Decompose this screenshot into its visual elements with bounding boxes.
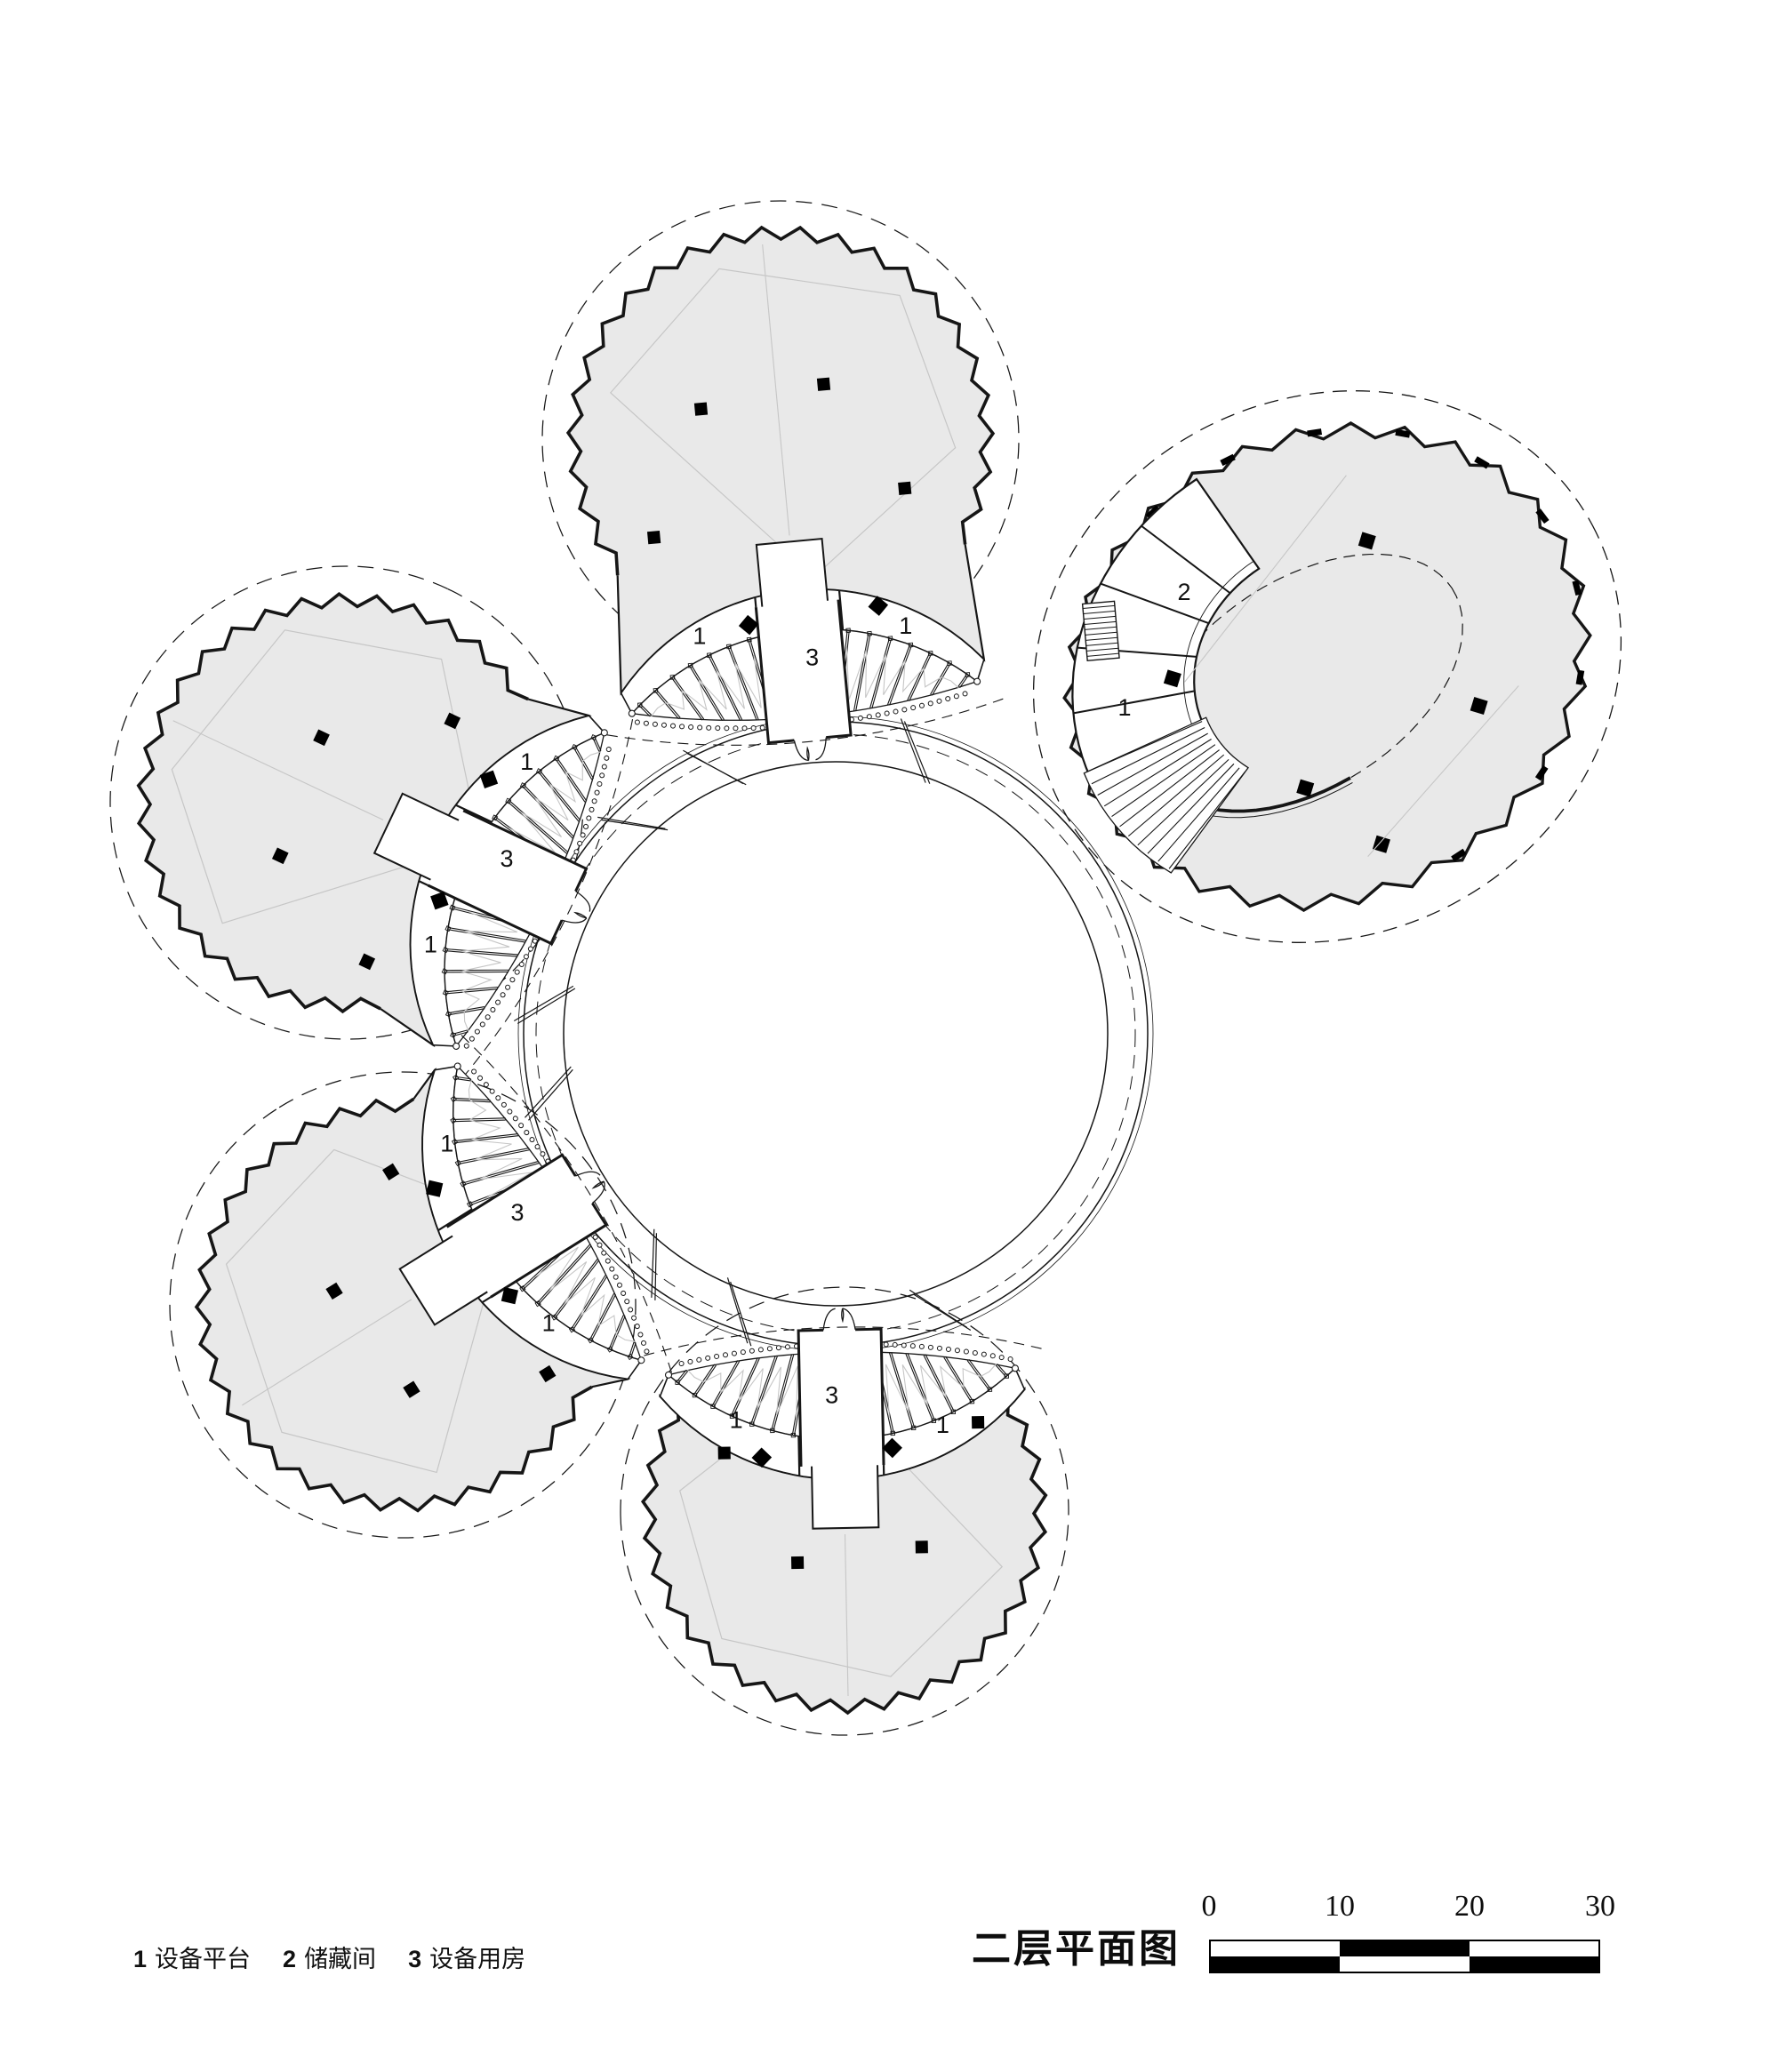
dot	[529, 1137, 535, 1143]
legend-label: 储藏间	[304, 1946, 376, 1972]
dot	[634, 1324, 640, 1330]
dot	[586, 815, 592, 821]
dot	[661, 723, 666, 727]
legend-item-2: 2储藏间	[283, 1940, 376, 1974]
dot	[964, 1349, 968, 1354]
room-number-label: 1	[520, 748, 533, 775]
dot	[688, 724, 693, 729]
ring-outer-line	[524, 722, 1148, 1346]
room-number-label: 3	[825, 1381, 838, 1408]
equipment-room-fill	[756, 600, 851, 743]
pavilion-northeast	[936, 289, 1718, 1045]
service-stair	[1083, 601, 1119, 660]
dot	[617, 1282, 623, 1288]
dot	[631, 1315, 637, 1321]
legend-num: 2	[283, 1946, 296, 1972]
dot	[919, 703, 924, 708]
dot	[505, 984, 511, 990]
dot	[670, 724, 675, 728]
dot	[954, 694, 958, 699]
dot	[885, 711, 889, 716]
dot	[500, 992, 506, 998]
dot	[725, 726, 729, 731]
dot	[495, 999, 501, 1005]
room-number-label: 3	[500, 845, 513, 872]
lens-tip-node	[973, 678, 981, 685]
dot	[463, 1043, 469, 1049]
dot	[540, 1151, 546, 1157]
dot	[609, 1266, 615, 1272]
dot	[644, 721, 648, 725]
dot	[621, 1290, 627, 1296]
dot	[876, 713, 880, 717]
dot	[707, 725, 711, 730]
dot	[637, 1332, 644, 1338]
dot	[507, 1108, 513, 1115]
dot	[767, 1347, 772, 1351]
column-marker	[647, 531, 661, 544]
dot	[749, 1348, 754, 1353]
dot	[928, 1345, 933, 1349]
dot	[893, 1342, 897, 1347]
room-number-label: 2	[1177, 579, 1190, 605]
dot	[981, 1352, 986, 1356]
dot	[785, 1345, 789, 1349]
dot	[641, 1340, 647, 1346]
dot	[715, 1354, 719, 1358]
dot	[910, 1344, 915, 1348]
vestibule	[757, 539, 829, 612]
dot	[501, 1101, 507, 1108]
dot	[519, 962, 525, 968]
dot	[751, 725, 756, 730]
dot	[758, 1348, 763, 1352]
dot	[477, 1075, 484, 1081]
legend: 1设备平台 2储藏间 3设备用房	[133, 1940, 525, 1974]
dot	[963, 692, 967, 696]
dot	[479, 1021, 485, 1028]
dot	[919, 1344, 924, 1348]
walkway-joint-wall	[525, 1067, 571, 1117]
drawing-title: 二层平面图	[972, 1916, 1181, 1973]
dot	[475, 1028, 481, 1035]
dot	[471, 1068, 477, 1075]
column-marker	[791, 1556, 804, 1569]
walkway-joint-wall	[597, 817, 665, 828]
dot	[653, 722, 657, 726]
dot	[628, 1307, 634, 1313]
scale-tick: 20	[1454, 1890, 1485, 1924]
dot	[604, 755, 610, 761]
legend-label: 设备用房	[429, 1946, 525, 1972]
dot	[490, 1007, 496, 1013]
legend-num: 1	[133, 1946, 147, 1972]
walkway-joint-wall	[601, 820, 668, 829]
dot	[528, 946, 534, 952]
dot	[902, 708, 907, 712]
dot	[495, 1095, 501, 1101]
dot	[741, 1350, 745, 1355]
pavilion-south: 131	[616, 1283, 1073, 1740]
lens-tip-node	[665, 1372, 671, 1378]
dot	[742, 726, 747, 731]
dot	[893, 709, 898, 714]
facade-tick	[1307, 428, 1322, 436]
dot	[518, 1123, 525, 1129]
service-stair-outline	[1083, 601, 1119, 660]
dot	[679, 1362, 684, 1366]
floor-plan-drawing: 13113113113121	[0, 0, 1778, 2072]
room-number-label: 1	[693, 622, 706, 649]
dot	[973, 1350, 977, 1355]
walkway-joint-wall	[655, 1233, 657, 1300]
equipment-room-fill	[798, 1329, 884, 1467]
room-number-label: 3	[805, 644, 819, 671]
dot	[589, 807, 595, 813]
dot	[937, 699, 941, 703]
column-marker	[817, 378, 830, 391]
dot	[601, 764, 607, 770]
scale-tick: 30	[1585, 1890, 1615, 1924]
dot	[776, 1346, 781, 1350]
dot	[697, 1357, 701, 1362]
ring-inner-line	[564, 762, 1108, 1306]
dot	[706, 1356, 710, 1360]
dot	[485, 1014, 491, 1020]
dot	[594, 789, 600, 796]
dot	[514, 969, 520, 975]
room-number-label: 1	[1117, 694, 1131, 721]
column-marker	[898, 482, 911, 495]
dot	[937, 1346, 941, 1350]
lens-tip-node	[1012, 1365, 1018, 1372]
room-number-label: 1	[899, 612, 912, 639]
dot	[946, 1347, 950, 1351]
floor-plan-page: 13113113113121 1设备平台 2储藏间 3设备用房 二层平面图 0 …	[0, 0, 1778, 2072]
dot	[624, 1299, 630, 1305]
legend-label: 设备平台	[155, 1946, 251, 1972]
dot	[591, 798, 597, 804]
scale-tick: 0	[1202, 1890, 1217, 1924]
dot	[524, 1130, 530, 1136]
legend-item-3: 3设备用房	[408, 1940, 525, 1974]
legend-num: 3	[408, 1946, 421, 1972]
dot	[955, 1348, 959, 1353]
dot	[999, 1356, 1004, 1360]
dot	[945, 696, 949, 700]
dot	[635, 720, 639, 724]
dot	[605, 747, 612, 753]
dot	[716, 725, 720, 730]
scale-bar-graphic	[1209, 1940, 1600, 1973]
column-marker	[694, 403, 708, 416]
dot	[858, 716, 862, 720]
lens-tip-node	[629, 710, 636, 717]
legend-item-1: 1设备平台	[133, 1940, 251, 1974]
ring-outer-line2	[518, 716, 1153, 1351]
dot	[760, 725, 765, 730]
central-ring	[514, 716, 1153, 1351]
dot	[1008, 1356, 1013, 1361]
dot	[697, 725, 701, 730]
dot	[509, 977, 516, 983]
dot	[901, 1343, 906, 1348]
pavilion-north: 131	[521, 180, 1047, 782]
column-marker	[972, 1416, 984, 1428]
room-number-label: 1	[730, 1406, 743, 1433]
dot	[723, 1353, 727, 1357]
pavilion-southwest: 131	[82, 982, 726, 1626]
dot	[583, 824, 589, 830]
room-number-label: 1	[542, 1309, 556, 1336]
column-marker	[916, 1540, 928, 1553]
scale-bar: 0 10 20 30	[1209, 1890, 1600, 1979]
dot	[644, 1348, 650, 1355]
dot	[990, 1354, 995, 1358]
dot	[601, 1250, 607, 1256]
dot	[469, 1036, 476, 1042]
dot	[732, 1351, 736, 1356]
room-number-label: 1	[424, 932, 437, 958]
dot	[597, 1242, 603, 1248]
room-number-label: 1	[936, 1412, 949, 1438]
dot	[884, 1342, 888, 1347]
dot	[512, 1116, 518, 1122]
vestibule	[812, 1460, 878, 1528]
scale-tick: 10	[1325, 1890, 1355, 1924]
room-number-label: 3	[510, 1199, 524, 1226]
pavilion-west: 131	[32, 488, 689, 1131]
dot	[577, 841, 583, 847]
dot	[599, 772, 605, 779]
dot	[733, 726, 738, 731]
dot	[613, 1274, 619, 1280]
dot	[688, 1359, 693, 1364]
walkway-joint-wall	[914, 1294, 971, 1330]
room-number-label: 1	[440, 1130, 453, 1156]
column-marker	[718, 1446, 731, 1459]
dot	[597, 781, 603, 788]
dot	[605, 1258, 611, 1264]
dot	[910, 705, 915, 709]
dot	[928, 701, 933, 706]
dot	[867, 714, 871, 718]
dot	[679, 724, 684, 729]
